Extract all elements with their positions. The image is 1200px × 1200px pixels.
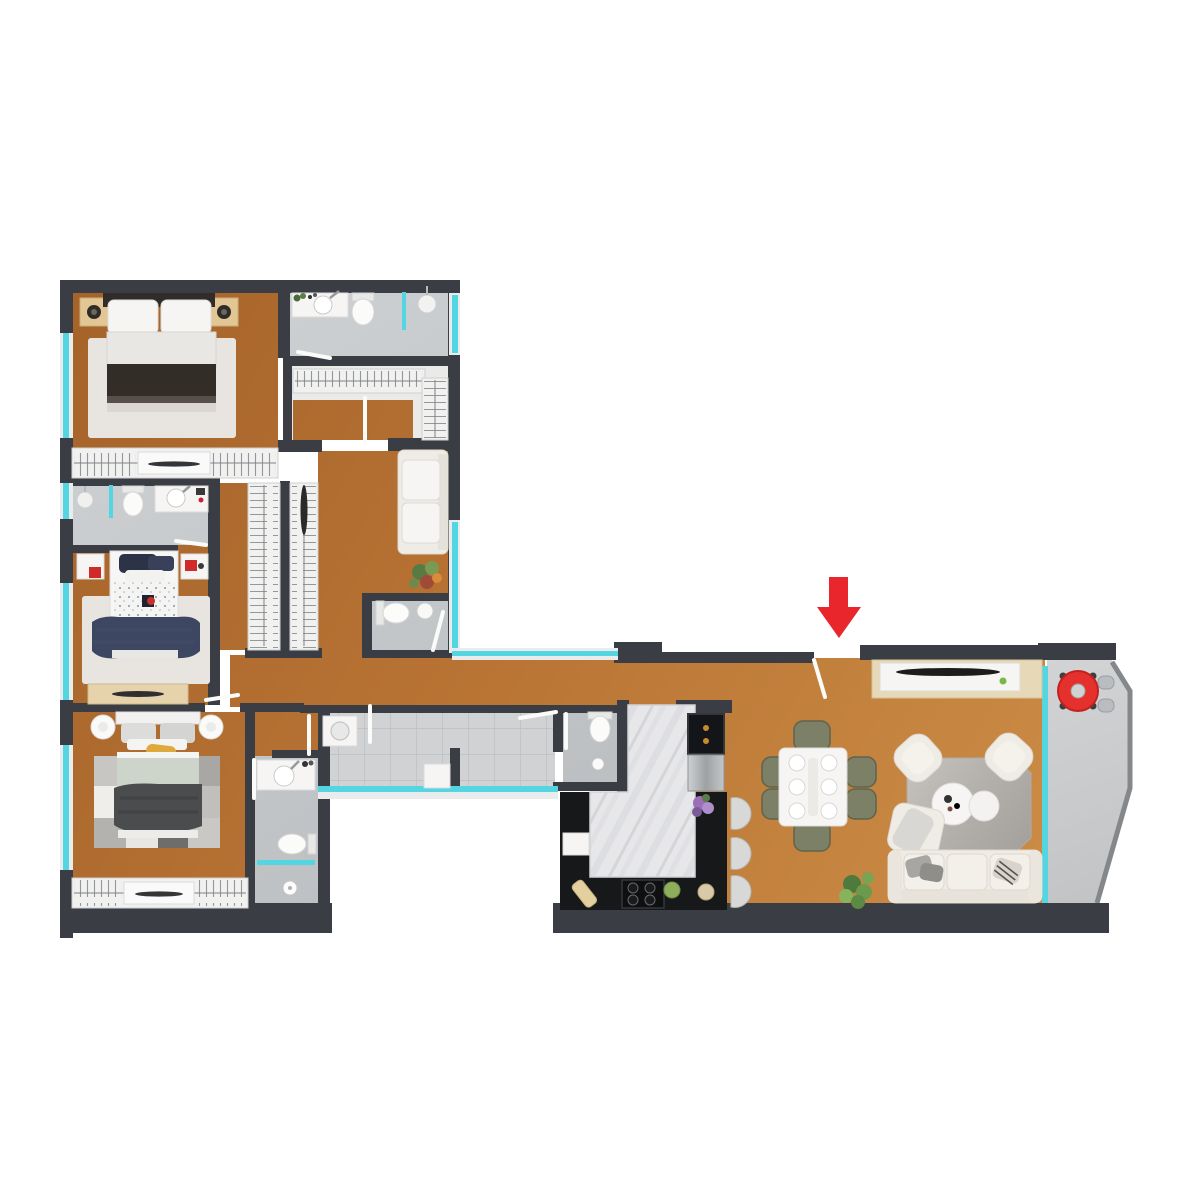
sofa (888, 850, 1042, 903)
window-bath1 (449, 293, 460, 355)
bench-handle (112, 691, 164, 697)
toilet (122, 486, 144, 516)
bar-stools (731, 798, 751, 908)
small-sink (417, 603, 433, 619)
red-box (89, 567, 101, 578)
appliance (424, 764, 450, 788)
tv (896, 668, 1000, 676)
side-table (969, 791, 999, 821)
dark-blanket (114, 784, 202, 833)
kitchen-bathroom-floor (563, 708, 617, 785)
red-box (185, 560, 197, 571)
oven (688, 714, 724, 754)
cabinet-front (563, 833, 589, 855)
toilet (383, 603, 409, 623)
sink (314, 296, 332, 314)
balcony-chair (1098, 676, 1114, 689)
walk-in-closet-wood (293, 400, 413, 440)
laundry-partition (450, 748, 460, 792)
pillow (108, 300, 158, 334)
drawer-handle (135, 891, 183, 896)
shower-glass-bath3 (257, 860, 315, 865)
drawer-handle (148, 461, 200, 466)
shower-glass-bath2 (109, 485, 113, 518)
dining-chair (794, 721, 830, 751)
mirror (301, 485, 308, 535)
stove (622, 880, 664, 908)
console-decor (1000, 678, 1007, 685)
bistro-table (1058, 671, 1098, 711)
window-bed2 (60, 583, 73, 700)
shower-drain (592, 758, 604, 770)
hallway-floor (230, 655, 630, 707)
window-hall-north (452, 648, 618, 660)
window-bath2 (60, 483, 73, 519)
dining-chair (846, 757, 876, 787)
fridge (688, 755, 724, 791)
toilet (278, 834, 316, 854)
seat-cushion (402, 503, 440, 543)
window-master (60, 333, 73, 438)
sink (167, 489, 185, 507)
shower-head (77, 492, 93, 508)
floor-plan-canvas (0, 0, 1200, 1200)
green-plate (664, 882, 680, 898)
shower-head (418, 295, 436, 313)
shower-glass-bath1 (402, 292, 406, 330)
washer-door (331, 722, 349, 740)
bedroom-2 (77, 551, 210, 704)
wardrobe (72, 448, 278, 478)
window-balcony-divider (1042, 666, 1048, 903)
toilet (352, 293, 374, 325)
dining-chair (846, 789, 876, 819)
wall-bed1-bath1 (278, 292, 290, 358)
hall-sofa (398, 450, 448, 554)
tv-cabinet (880, 663, 1020, 691)
pillow (161, 300, 211, 334)
balcony-chair (1098, 699, 1114, 712)
window-corridor-east (449, 520, 460, 653)
floor-plan-svg (0, 0, 1200, 1200)
closet-walkway-floor (220, 483, 248, 650)
tv-console (872, 660, 1042, 698)
seat-cushion (402, 460, 440, 500)
armrest (888, 850, 902, 903)
bread-basket (698, 884, 714, 900)
place-settings (789, 755, 837, 819)
seat-cushion (947, 854, 987, 890)
window-bed3 (60, 745, 73, 870)
wardrobe (72, 878, 248, 908)
